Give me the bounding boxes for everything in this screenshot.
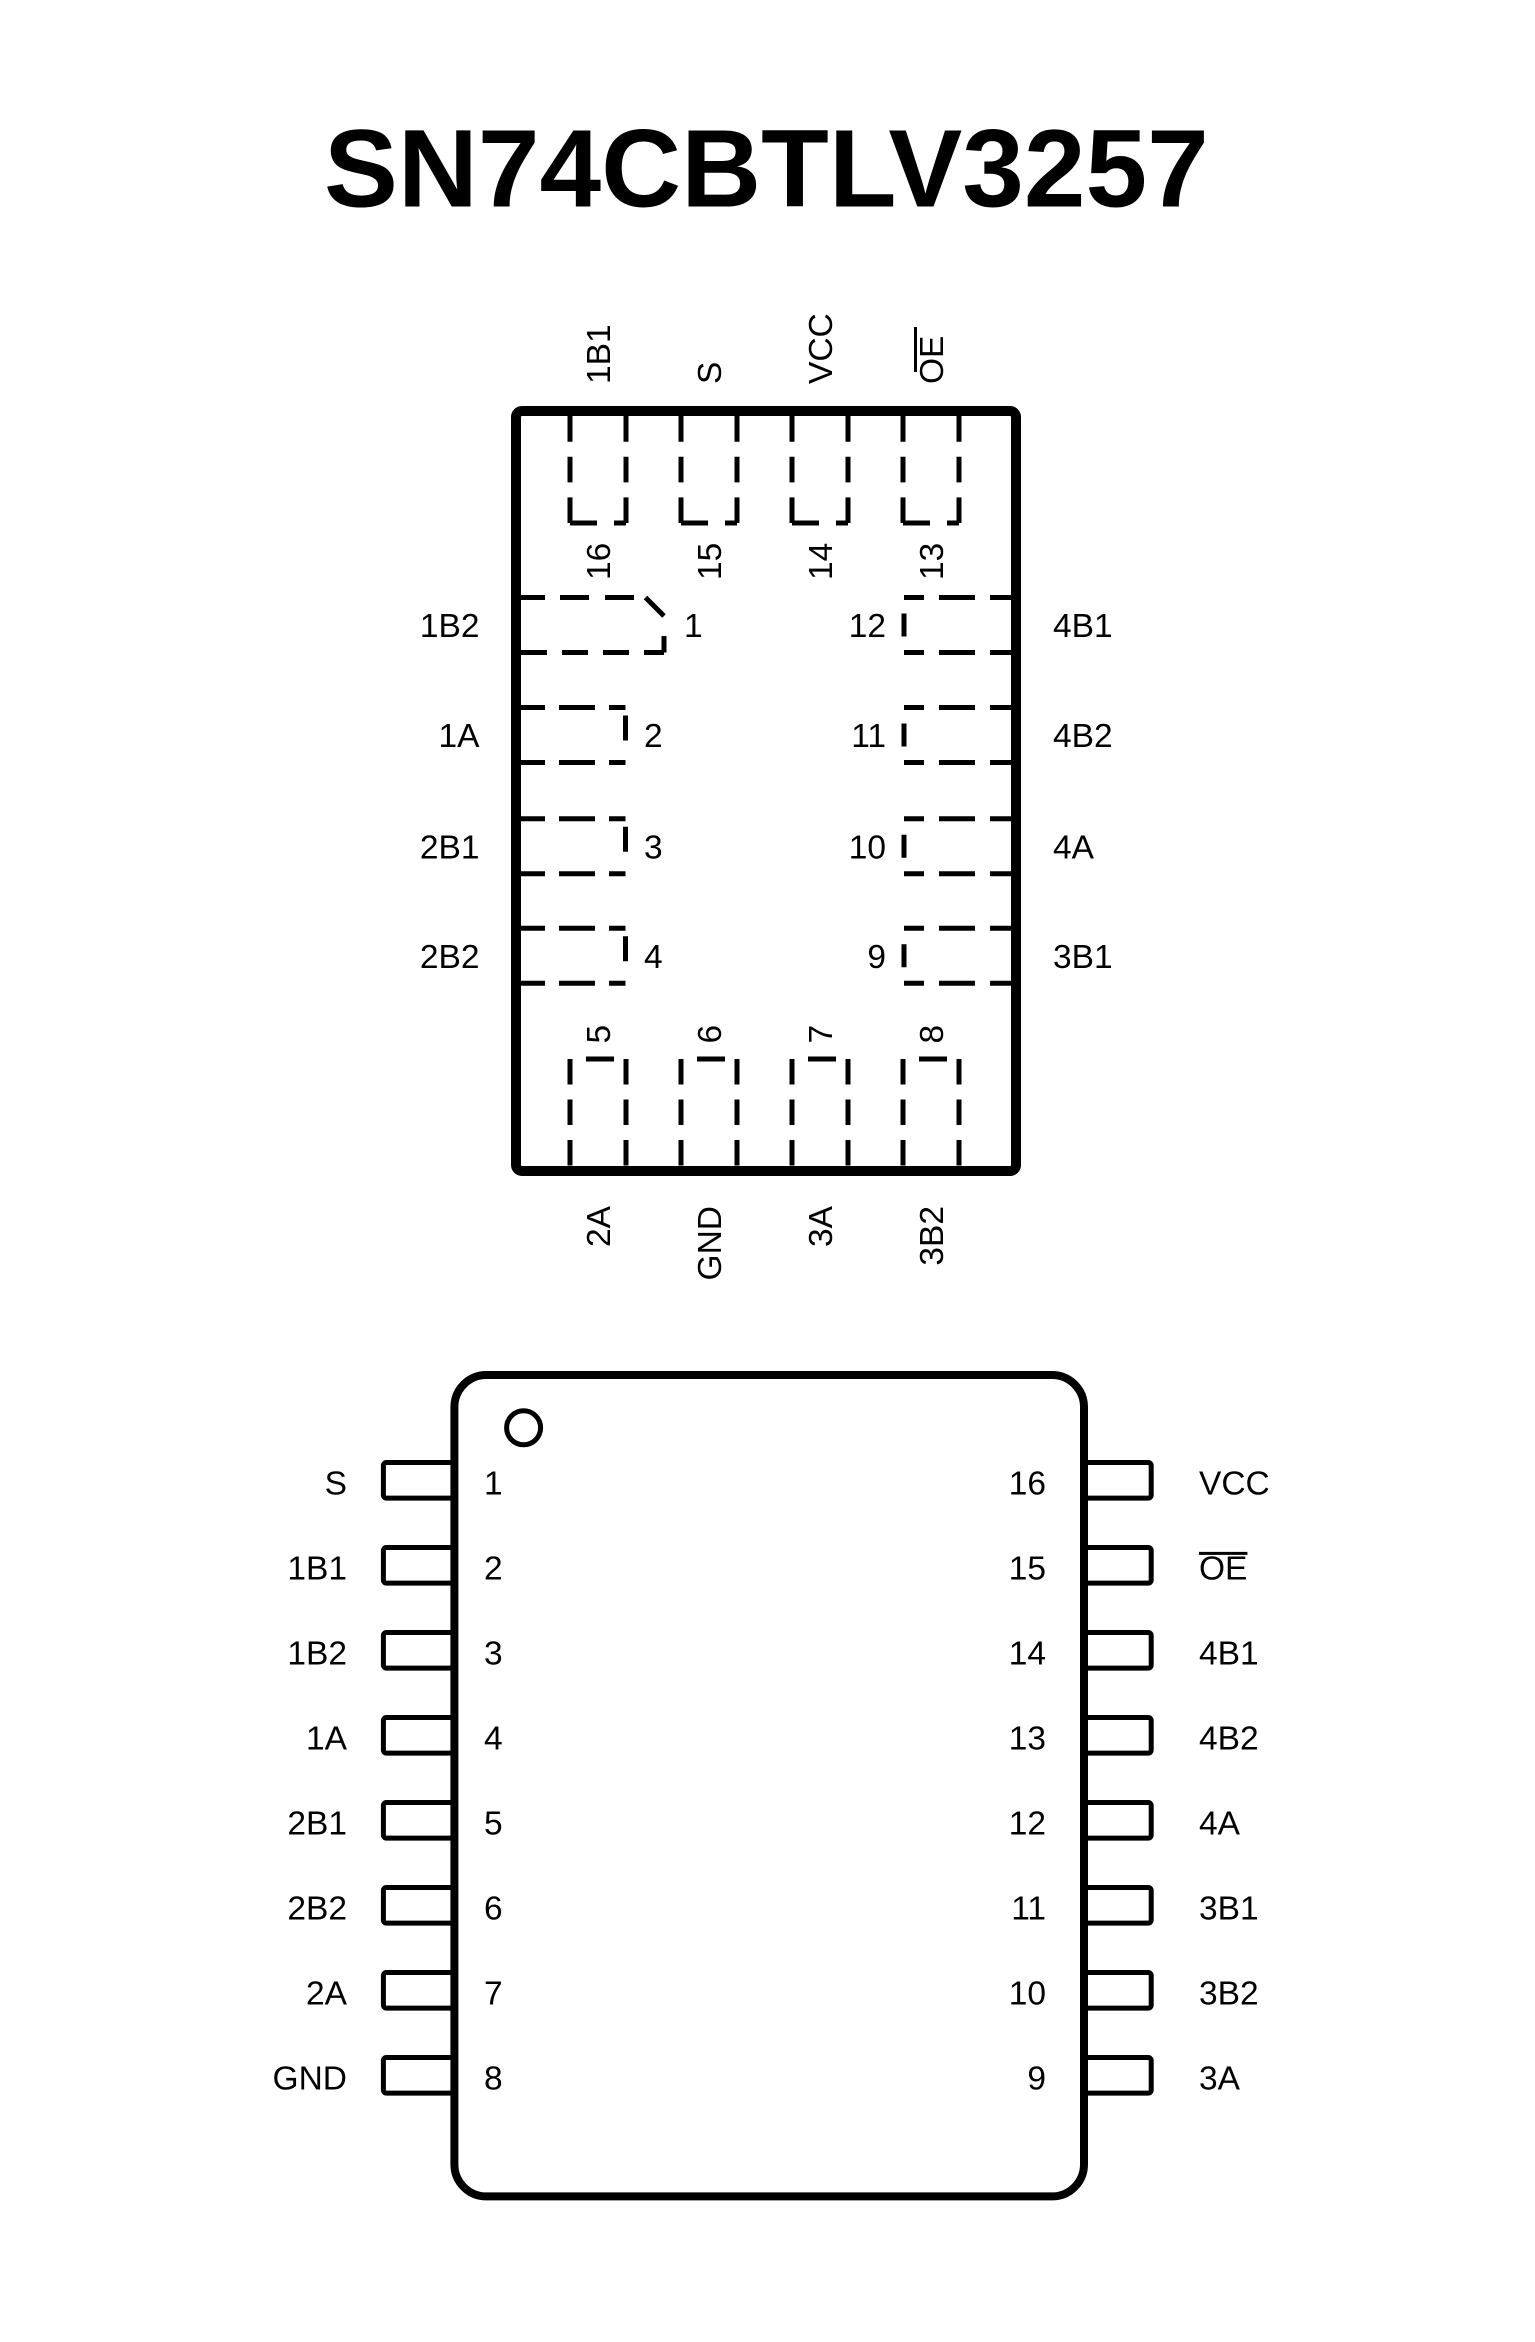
svg-text:S: S [325, 1465, 347, 1502]
svg-text:15: 15 [1009, 1550, 1046, 1587]
svg-text:4A: 4A [1199, 1805, 1241, 1842]
svg-text:4B2: 4B2 [1053, 718, 1113, 755]
svg-text:14: 14 [803, 543, 840, 580]
svg-text:1B2: 1B2 [287, 1635, 347, 1672]
svg-text:4: 4 [484, 1720, 503, 1757]
svg-text:6: 6 [484, 1890, 503, 1927]
svg-text:2: 2 [484, 1550, 503, 1587]
svg-text:14: 14 [1009, 1635, 1046, 1672]
svg-text:1B1: 1B1 [581, 324, 618, 384]
svg-text:3A: 3A [1199, 2060, 1241, 2097]
svg-text:2: 2 [644, 718, 663, 755]
svg-text:4: 4 [644, 939, 663, 976]
svg-text:5: 5 [581, 1025, 618, 1044]
svg-text:3B1: 3B1 [1053, 939, 1113, 976]
svg-text:1: 1 [684, 608, 703, 645]
svg-text:8: 8 [914, 1025, 951, 1044]
svg-text:OE: OE [1199, 1550, 1247, 1587]
svg-text:6: 6 [692, 1025, 729, 1044]
svg-text:7: 7 [803, 1025, 840, 1044]
svg-text:9: 9 [1027, 2060, 1046, 2097]
svg-text:2B1: 2B1 [287, 1805, 347, 1842]
svg-text:VCC: VCC [803, 313, 840, 384]
svg-text:GND: GND [692, 1206, 729, 1280]
svg-text:1A: 1A [306, 1720, 348, 1757]
svg-text:2B1: 2B1 [420, 829, 480, 866]
svg-text:16: 16 [581, 543, 618, 580]
svg-text:1B1: 1B1 [287, 1550, 347, 1587]
svg-text:7: 7 [484, 1975, 503, 2012]
svg-text:SN74CBTLV3257: SN74CBTLV3257 [324, 108, 1209, 231]
svg-text:VCC: VCC [1199, 1465, 1270, 1502]
svg-text:9: 9 [867, 939, 886, 976]
svg-text:2B2: 2B2 [287, 1890, 347, 1927]
svg-text:3A: 3A [803, 1205, 840, 1247]
svg-text:11: 11 [1011, 1890, 1046, 1927]
svg-text:16: 16 [1009, 1465, 1046, 1502]
svg-text:8: 8 [484, 2060, 503, 2097]
svg-text:12: 12 [1009, 1805, 1046, 1842]
svg-text:4B1: 4B1 [1199, 1635, 1259, 1672]
svg-text:10: 10 [1009, 1975, 1046, 2012]
svg-text:13: 13 [914, 543, 951, 580]
svg-text:3B1: 3B1 [1199, 1890, 1259, 1927]
svg-text:2A: 2A [306, 1975, 348, 2012]
svg-text:1A: 1A [439, 718, 481, 755]
svg-text:1: 1 [484, 1465, 503, 1502]
svg-text:15: 15 [692, 543, 729, 580]
svg-text:3B2: 3B2 [1199, 1975, 1259, 2012]
svg-text:12: 12 [849, 608, 886, 645]
svg-text:10: 10 [849, 829, 886, 866]
svg-text:S: S [692, 362, 729, 384]
svg-text:4B1: 4B1 [1053, 608, 1113, 645]
svg-text:11: 11 [851, 718, 886, 755]
svg-text:13: 13 [1009, 1720, 1046, 1757]
svg-text:4A: 4A [1053, 829, 1095, 866]
svg-text:3: 3 [644, 829, 663, 866]
svg-text:GND: GND [273, 2060, 347, 2097]
svg-text:2A: 2A [581, 1205, 618, 1247]
svg-text:OE: OE [914, 336, 951, 384]
svg-text:3B2: 3B2 [914, 1206, 951, 1266]
svg-text:5: 5 [484, 1805, 503, 1842]
svg-text:4B2: 4B2 [1199, 1720, 1259, 1757]
svg-text:1B2: 1B2 [420, 608, 480, 645]
svg-text:2B2: 2B2 [420, 939, 480, 976]
svg-text:3: 3 [484, 1635, 503, 1672]
